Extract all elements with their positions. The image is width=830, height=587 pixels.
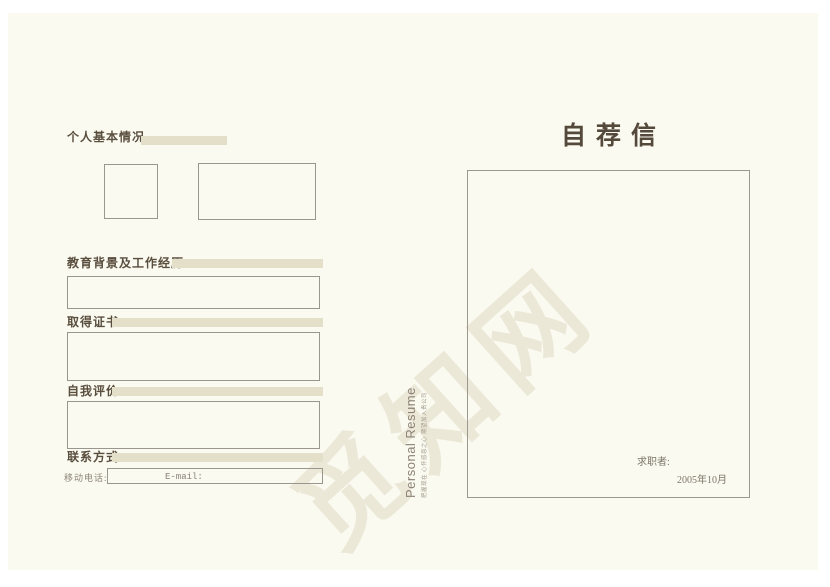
cover-letter-textbox[interactable] [467, 170, 750, 498]
contact-input-box[interactable] [107, 468, 323, 484]
template-canvas: 觅知网 个人基本情况 教育背景及工作经历 取得证书 自我评价 联系方式 移动电话… [0, 0, 830, 587]
email-label: E-mail: [165, 472, 203, 482]
self-evaluation-textbox[interactable] [67, 401, 320, 449]
cover-letter-title: 自荐信 [467, 116, 750, 152]
basic-info-box[interactable] [198, 163, 316, 220]
mobile-phone-label: 移动电话: [64, 471, 108, 484]
section-header-basic-info: 个人基本情况 [67, 130, 145, 144]
spine-title: Personal Resume [403, 388, 418, 498]
section-header-education: 教育背景及工作经历 [67, 256, 184, 270]
accent-bar-contact [112, 453, 323, 462]
education-textbox[interactable] [67, 276, 320, 309]
letter-date: 2005年10月 [677, 471, 727, 486]
spine-block: Personal Resume 把握现在 心怀感恩之心 期望加入贵公司 [403, 388, 433, 498]
accent-bar-certificates [112, 318, 323, 327]
photo-placeholder-box[interactable] [104, 164, 158, 219]
spine-tagline: 把握现在 心怀感恩之心 期望加入贵公司 [420, 388, 428, 498]
applicant-signature-label: 求职者: [637, 453, 670, 468]
accent-bar-education [172, 259, 323, 268]
certificates-textbox[interactable] [67, 332, 320, 381]
accent-bar-self-evaluation [112, 387, 323, 396]
accent-bar-basic-info [141, 136, 227, 145]
